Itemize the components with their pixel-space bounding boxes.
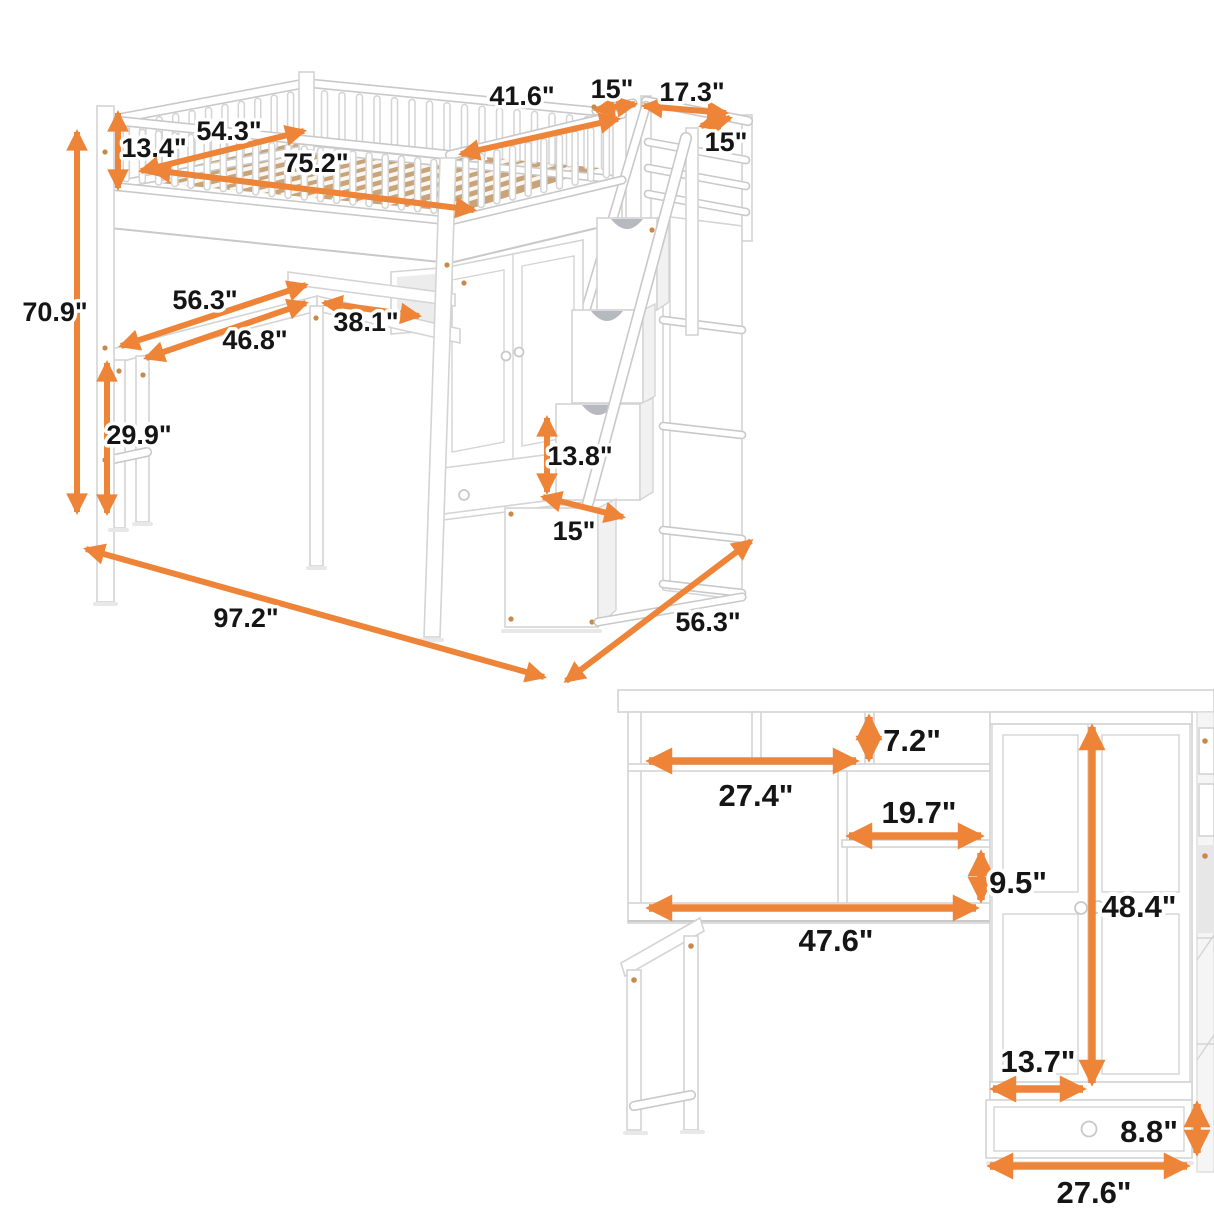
dim-label-desk-height: 29.9": [106, 420, 171, 450]
dim-label-guardrail-height: 13.4": [121, 133, 186, 163]
dim-middle-shelf-width: 19.7": [849, 795, 981, 836]
hutch-shelf-upper: [628, 764, 990, 771]
dim-label-drawer-height: 8.8": [1120, 1114, 1178, 1149]
wardrobe-drawer-knob: [459, 490, 469, 500]
dim-label-landing-width: 17.3": [659, 77, 724, 107]
dim-label-middle-shelf-width: 19.7": [881, 795, 956, 830]
dim-drawer-width: 27.6": [990, 1166, 1187, 1210]
desk-top-detail: [618, 690, 1214, 712]
dim-label-desk-depth: 38.1": [333, 307, 398, 337]
hutch-shelf-middle: [842, 840, 990, 847]
bed-post-left: [97, 106, 114, 602]
dim-top-cubby-height: 7.2": [869, 717, 941, 759]
side-bookshelf: [663, 216, 742, 600]
dim-label-step-box-height: 13.8": [547, 441, 612, 471]
dim-label-top-cubby-height: 7.2": [883, 723, 941, 758]
dim-label-landing-depth: 15": [705, 127, 748, 157]
dim-label-desk-length: 46.8": [222, 325, 287, 355]
hutch-divider-3: [838, 771, 847, 905]
wardrobe-door-knob: [515, 348, 524, 357]
dim-label-shelf-length: 56.3": [172, 285, 237, 315]
dim-label-right-rail: 41.6": [489, 81, 554, 111]
desk-return-detail: [621, 918, 704, 1133]
dim-overall-height: 70.9": [22, 132, 87, 512]
diagram-canvas: 70.9" 13.4" 54.3" 75.2" 41.6" 15" 17.3": [0, 0, 1214, 1214]
dim-label-bed-length: 75.2": [283, 148, 348, 178]
dim-label-desk-width: 47.6": [798, 923, 873, 958]
dim-label-lower-cubby-height: 9.5": [989, 865, 1047, 900]
wardrobe-door-knob: [502, 352, 511, 361]
dim-label-bed-width: 54.3": [196, 116, 261, 146]
dim-label-hutch-shelf-width: 27.4": [718, 778, 793, 813]
dim-label-landing-gap: 15": [591, 74, 634, 104]
dim-landing-gap: 15": [591, 74, 635, 110]
dim-label-step-box-width: 15": [553, 516, 596, 546]
product-dimension-diagram: 70.9" 13.4" 54.3" 75.2" 41.6" 15" 17.3": [0, 0, 1214, 1214]
staircase-edge-strip: [1197, 712, 1214, 1172]
main-view-loft-bed: 70.9" 13.4" 54.3" 75.2" 41.6" 15" 17.3": [22, 72, 752, 681]
detail-view-desk-wardrobe: 7.2" 27.4" 19.7" 9.5" 47.6" 48.4" 13.7": [618, 690, 1214, 1210]
dim-label-wardrobe-height: 48.4": [1101, 889, 1176, 924]
dim-label-overall-height: 70.9": [22, 297, 87, 327]
dim-landing-width: 17.3": [644, 77, 726, 113]
wardrobe-drawer-knob: [1082, 1122, 1097, 1137]
dim-label-door-width: 13.7": [1000, 1044, 1075, 1079]
stair-newel-post: [686, 128, 698, 335]
dim-label-overall-depth: 56.3": [675, 607, 740, 637]
hutch-left-post: [628, 712, 641, 905]
wardrobe-door-knob: [1075, 902, 1087, 914]
dim-label-drawer-width: 27.6": [1056, 1175, 1131, 1210]
dim-label-overall-length: 97.2": [213, 603, 278, 633]
desk-leg-corner: [310, 306, 323, 566]
